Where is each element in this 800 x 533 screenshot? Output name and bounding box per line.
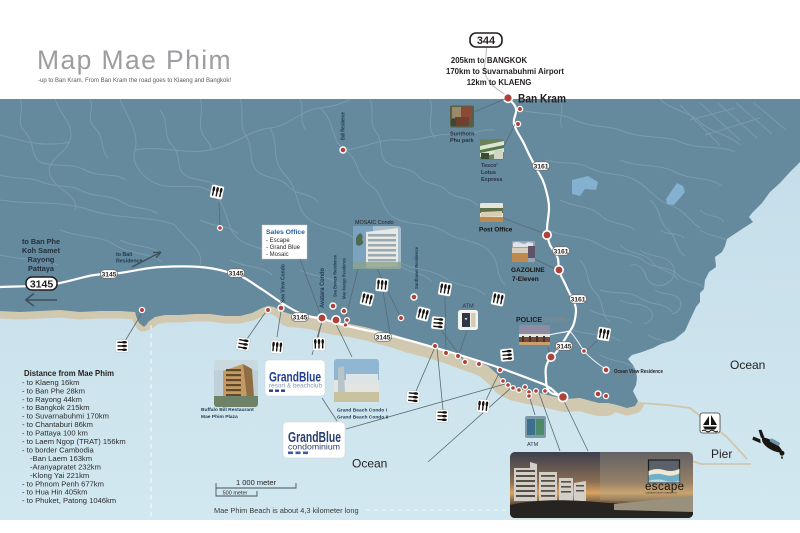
svg-text:Ban Kram: Ban Kram: [518, 94, 566, 106]
svg-text:condominium: condominium: [288, 442, 340, 452]
svg-text:to Ban Phe: to Ban Phe: [22, 237, 60, 246]
svg-text:3145: 3145: [228, 271, 243, 278]
svg-text:Sales Office: Sales Office: [266, 229, 305, 236]
svg-text:MOSAIC Condo: MOSAIC Condo: [355, 220, 394, 226]
svg-text:- to Phuket, Patong 1046km: - to Phuket, Patong 1046km: [22, 496, 116, 505]
svg-text:3161: 3161: [533, 164, 548, 171]
svg-text:Mae Mango Residence: Mae Mango Residence: [342, 258, 347, 299]
svg-text:12km to KLAENG: 12km to KLAENG: [467, 78, 532, 87]
svg-text:170km to Suvarnabuhmi Airport: 170km to Suvarnabuhmi Airport: [446, 67, 564, 76]
svg-text:Pattaya: Pattaya: [28, 264, 55, 273]
svg-text:Avatara Condo: Avatara Condo: [319, 268, 326, 308]
svg-text:Tesco': Tesco': [481, 163, 498, 169]
svg-text:3161: 3161: [570, 297, 585, 304]
svg-text:Map Mae Phim: Map Mae Phim: [37, 45, 232, 75]
svg-text:-up to Ban Kram. From Ban Kram: -up to Ban Kram. From Ban Kram the road …: [38, 77, 231, 84]
svg-text:3145: 3145: [375, 335, 390, 342]
svg-text:Ocean: Ocean: [352, 457, 387, 471]
svg-text:Pier: Pier: [711, 447, 732, 461]
svg-text:3161: 3161: [553, 249, 568, 256]
svg-text:Buffalo Bill Restaurant: Buffalo Bill Restaurant: [201, 407, 254, 413]
svg-text:500 meter: 500 meter: [223, 491, 248, 497]
svg-text:Sea Breeze Residence: Sea Breeze Residence: [333, 255, 338, 297]
svg-text:Lotus: Lotus: [481, 170, 496, 176]
svg-text:344: 344: [477, 35, 496, 47]
svg-text:- Mosaic: - Mosaic: [266, 252, 289, 258]
svg-text:Express: Express: [481, 177, 502, 183]
svg-text:3145: 3145: [556, 344, 571, 351]
svg-text:3145: 3145: [292, 315, 307, 322]
svg-text:Post Office: Post Office: [479, 227, 513, 234]
svg-text:7-Eleven: 7-Eleven: [512, 276, 539, 283]
svg-text:Ocean: Ocean: [730, 358, 765, 372]
svg-text:205km to BANGKOK: 205km to BANGKOK: [451, 56, 528, 65]
svg-text:Sunthorn: Sunthorn: [450, 132, 475, 138]
svg-text:Mae Phim Plaza: Mae Phim Plaza: [201, 414, 238, 420]
svg-text:1 000 meter: 1 000 meter: [236, 478, 277, 487]
svg-text:Distance from Mae Phim: Distance from Mae Phim: [24, 369, 114, 378]
svg-text:resort & beachclub: resort & beachclub: [269, 384, 323, 390]
svg-text:condominium maephim: condominium maephim: [646, 491, 678, 495]
svg-text:Koh Samet: Koh Samet: [22, 246, 61, 255]
svg-text:- Grand Blue: - Grand Blue: [266, 245, 301, 251]
svg-text:3145: 3145: [101, 272, 116, 279]
svg-text:POLICE Station: POLICE Station: [516, 317, 566, 324]
svg-text:Rayong: Rayong: [28, 255, 55, 264]
svg-text:Ocean View Residence: Ocean View Residence: [614, 369, 663, 375]
svg-text:Mae Phim Beach is about 4,3 ki: Mae Phim Beach is about 4,3 kilometer lo…: [214, 506, 359, 515]
svg-text:GrandBlue: GrandBlue: [269, 370, 321, 385]
svg-text:Bali Residence: Bali Residence: [341, 112, 347, 140]
svg-text:ATM: ATM: [527, 442, 539, 448]
svg-text:3145: 3145: [30, 279, 54, 291]
svg-text:ATM: ATM: [463, 304, 475, 310]
svg-text:Phu park: Phu park: [450, 138, 474, 144]
svg-text:Grand Beach Condo II: Grand Beach Condo II: [337, 415, 389, 421]
svg-text:GAZOLINE: GAZOLINE: [511, 267, 545, 274]
svg-text:Grand Beach Condo I: Grand Beach Condo I: [337, 408, 388, 414]
svg-text:to Bali: to Bali: [116, 252, 133, 258]
svg-text:Sea View Condo: Sea View Condo: [281, 264, 287, 303]
svg-text:Sunflower Residence: Sunflower Residence: [414, 247, 420, 289]
svg-text:- Escape: - Escape: [266, 238, 290, 244]
